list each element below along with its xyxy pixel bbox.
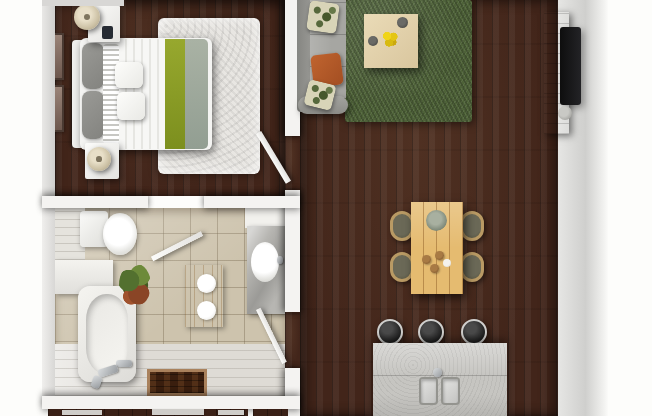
vanity-oval-sink [251,242,279,282]
white-accent-pillow-1 [115,62,143,88]
bar-stool-1 [377,319,403,345]
gray-pillow-2 [82,91,104,139]
bedroom-left-wall [42,0,55,208]
table-bowl-4 [443,259,451,267]
table-lamp-top [74,4,100,30]
speaker [558,106,572,120]
bathroom-door-threshold [285,312,300,368]
table-bowl-1 [422,255,431,264]
bedroom-bathroom-wall-right [204,196,300,208]
dining-chair-3 [460,211,484,241]
decor-bowl-2 [368,36,378,46]
bar-stool-2 [418,319,444,345]
bar-stool-3 [461,319,487,345]
sage-blanket [185,39,208,149]
table-lamp-bottom [87,147,111,171]
lower-room-object-1 [62,410,102,415]
plant-centerpiece [426,210,447,231]
phone-on-nightstand [102,26,113,39]
white-accent-pillow-2 [117,92,145,120]
lower-room-object-2 [152,409,204,415]
toilet-bowl [103,213,137,255]
leaf-pattern-pillow-1 [306,0,340,34]
vanity-faucet [277,256,283,264]
rolled-towel-1 [197,274,216,293]
bathroom-bottom-wall [42,396,300,409]
bathroom-wood-floor-inset [147,369,207,396]
bathroom-left-wall [42,208,55,396]
table-bowl-3 [430,264,439,273]
bathroom-potted-plant [119,263,151,307]
double-bed [80,38,212,150]
kitchen-island [373,343,507,416]
rolled-towel-2 [197,301,216,320]
decor-bowl-1 [397,17,408,28]
striped-pillows [103,44,119,144]
dining-chair-4 [460,252,484,282]
bedroom-top-wall [42,0,124,6]
lime-green-throw [165,39,185,149]
sink-basin-right [441,377,460,405]
island-faucet [433,368,442,377]
lower-room-object-3 [218,410,244,415]
bathroom-living-wall-upper [285,190,300,312]
tub-faucet [116,360,132,367]
gray-pillow-1 [82,43,104,89]
table-bowl-2 [435,251,444,260]
floor-plan-render [0,0,652,416]
yellow-flower-bowl [381,29,400,49]
lower-room-sliver-right [253,409,288,416]
bedroom-bathroom-wall-left [42,196,148,208]
sink-basin-left [419,377,438,405]
wall-mounted-tv [560,27,581,105]
